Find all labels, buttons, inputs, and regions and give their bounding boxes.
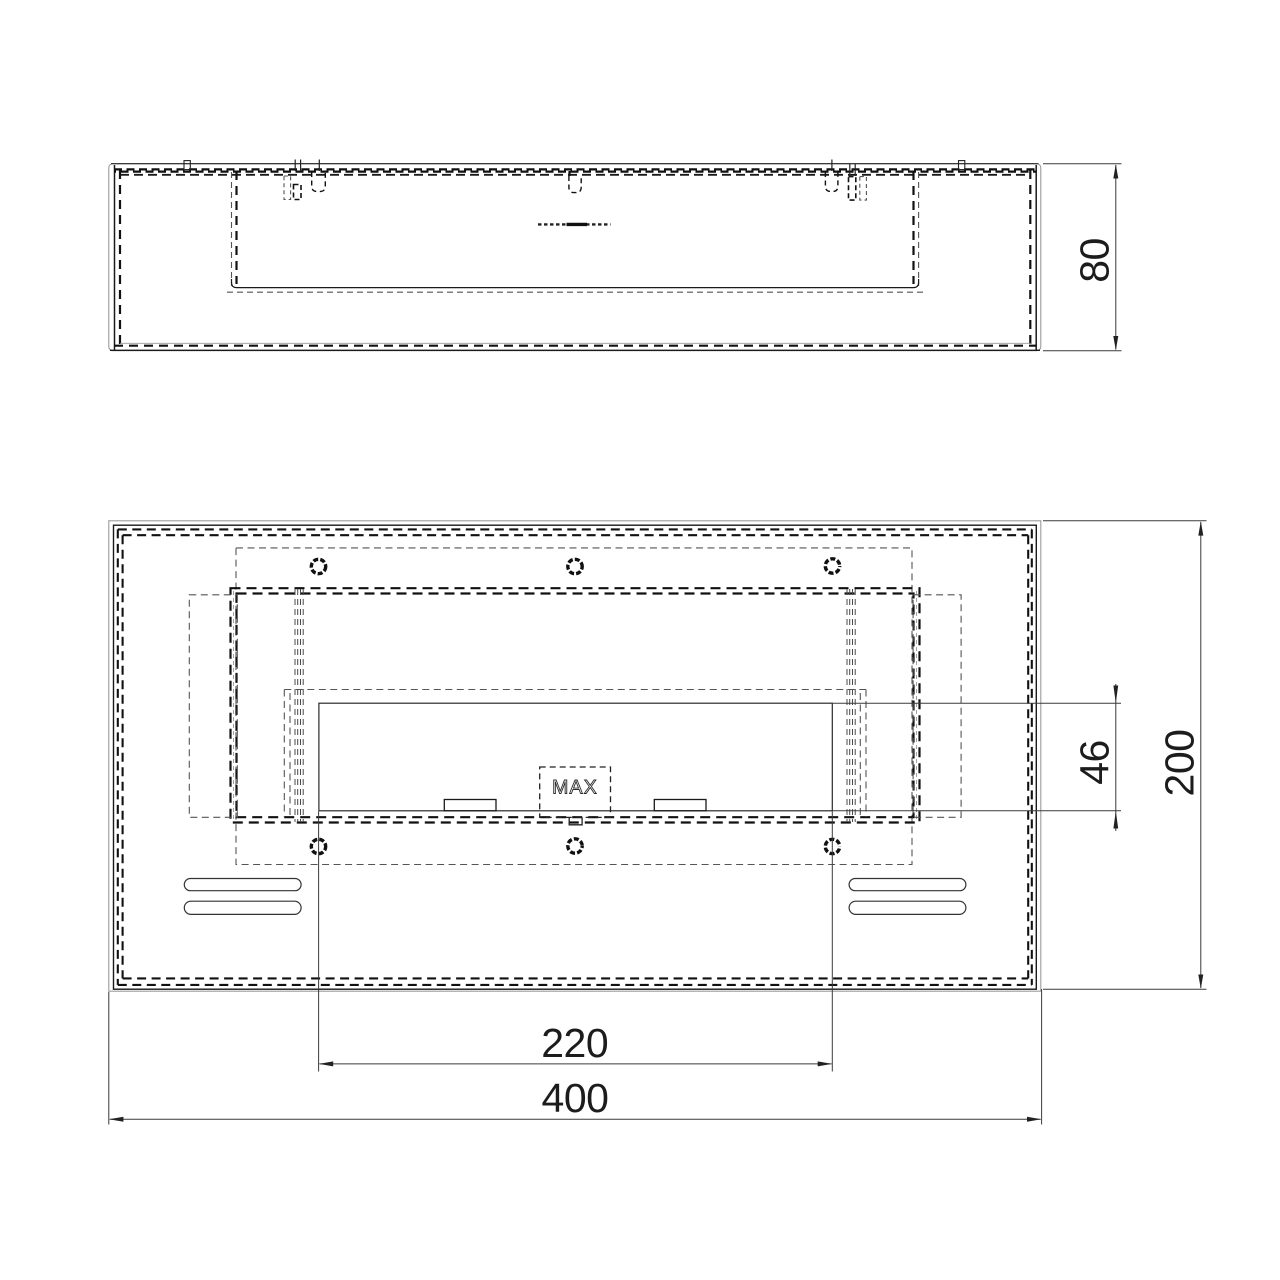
svg-text:200: 200 [1157,730,1203,797]
svg-text:MAX: MAX [552,777,598,799]
svg-text:80: 80 [1072,238,1118,283]
svg-text:220: 220 [541,1020,608,1066]
svg-text:400: 400 [542,1075,609,1121]
svg-text:46: 46 [1072,740,1118,785]
